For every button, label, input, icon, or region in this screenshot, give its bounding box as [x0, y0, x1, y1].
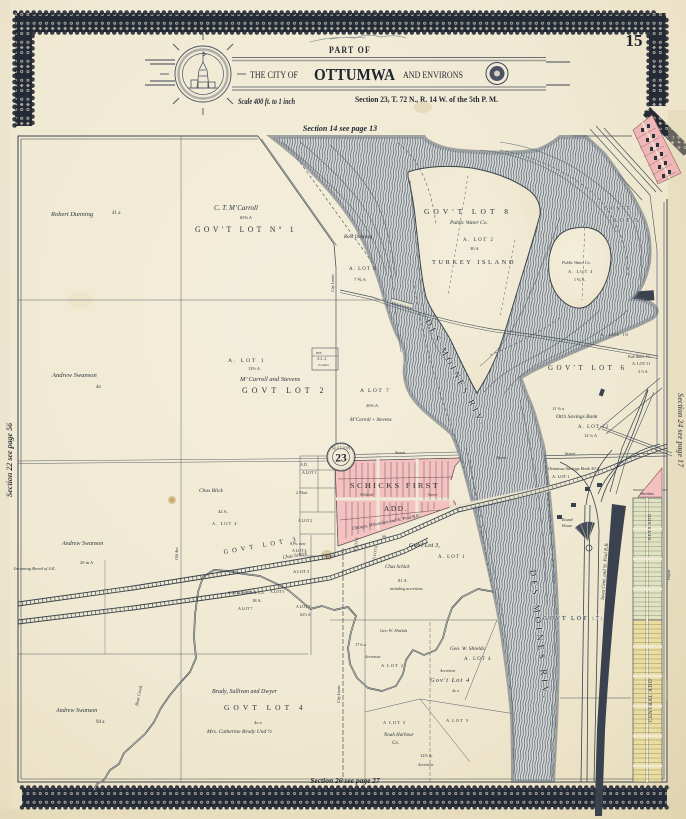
svg-text:Gov't Lot 4: Gov't Lot 4 [430, 677, 470, 684]
svg-text:30 A: 30 A [470, 246, 479, 251]
svg-text:THE CITY OF: THE CITY OF [250, 70, 298, 80]
svg-text:Street: Street [428, 492, 438, 497]
svg-text:18 A.: 18 A. [252, 598, 262, 603]
svg-text:20 in A: 20 in A [80, 560, 94, 565]
svg-text:Accretion: Accretion [364, 654, 380, 659]
svg-text:REF: REF [316, 351, 322, 355]
svg-text:Round: Round [561, 517, 573, 522]
svg-text:A. LOT 12: A. LOT 12 [578, 425, 609, 430]
svg-text:A LOT 3: A LOT 3 [293, 569, 310, 574]
svg-text:Andrew Swanson: Andrew Swanson [55, 708, 97, 714]
svg-text:CENTRAL ADD: CENTRAL ADD [649, 679, 654, 722]
svg-text:13⅔ A: 13⅔ A [248, 366, 261, 371]
svg-text:Hayne: Hayne [666, 569, 671, 581]
svg-text:Brady, Sullivan and Dwyer: Brady, Sullivan and Dwyer [212, 689, 278, 695]
svg-text:KEYS ADD: KEYS ADD [647, 513, 652, 540]
svg-text:A. LOT 11: A. LOT 11 [632, 361, 650, 366]
svg-text:A. LOT 4: A. LOT 4 [212, 521, 238, 526]
svg-text:A LOT 1: A LOT 1 [302, 470, 316, 475]
svg-text:Ott’s Savings Bank: Ott’s Savings Bank [556, 414, 598, 420]
svg-text:A. LOT 1: A. LOT 1 [552, 474, 570, 479]
svg-text:4o a: 4o a [254, 720, 262, 725]
svg-text:81 A.: 81 A. [398, 578, 408, 583]
svg-text:Section 14 see page 13: Section 14 see page 13 [303, 124, 377, 133]
svg-text:1 ⅙ A.: 1 ⅙ A. [574, 277, 586, 282]
svg-text:TURKEY ISLAND: TURKEY ISLAND [432, 259, 516, 266]
svg-text:4o a: 4o a [452, 688, 459, 693]
svg-text:SECTION: SECTION [332, 447, 351, 451]
svg-text:AND ENVIRONS: AND ENVIRONS [403, 70, 463, 80]
svg-text:Accretion: Accretion [417, 762, 433, 767]
svg-text:Accretion: Accretion [439, 668, 455, 673]
svg-text:Incoming Breed of S.E.: Incoming Breed of S.E. [13, 566, 56, 571]
svg-text:Andrew Swanson: Andrew Swanson [51, 372, 97, 379]
svg-text:23: 23 [335, 453, 347, 465]
svg-text:GOV'T: GOV'T [604, 206, 632, 212]
svg-text:GOV'T LOT Nº 1: GOV'T LOT Nº 1 [195, 225, 297, 234]
svg-text:GOV'T LOT 8: GOV'T LOT 8 [424, 207, 512, 216]
svg-text:15: 15 [626, 31, 643, 50]
svg-text:Street: Street [497, 455, 507, 460]
svg-text:City Limits: City Limits [330, 274, 335, 292]
svg-text:A.L. 2: A.L. 2 [317, 357, 326, 361]
svg-text:46.: 46. [381, 533, 387, 539]
svg-text:Public Water Co.: Public Water Co. [449, 220, 488, 226]
svg-text:OTTUMWA: OTTUMWA [314, 65, 395, 84]
svg-text:Section 26 see page 27: Section 26 see page 27 [310, 776, 380, 785]
svg-text:GOVT LOT 4: GOVT LOT 4 [224, 703, 307, 712]
svg-text:62⅓ A: 62⅓ A [300, 612, 311, 617]
svg-text:A. LOT 1: A. LOT 1 [438, 555, 466, 560]
svg-text:House: House [561, 523, 572, 528]
svg-text:Chas Blick: Chas Blick [199, 488, 224, 494]
svg-text:94 a: 94 a [96, 720, 105, 725]
svg-text:A.D.: A.D. [300, 462, 308, 467]
svg-text:Street: Street [395, 450, 406, 455]
svg-text:A LOT 7: A LOT 7 [360, 388, 390, 394]
svg-text:City Limits: City Limits [336, 685, 341, 703]
svg-text:Andrew Swanson: Andrew Swanson [61, 541, 103, 547]
svg-text:20⅛ A.: 20⅛ A. [366, 403, 379, 408]
svg-text:A LOT 2: A LOT 2 [298, 518, 312, 523]
svg-text:17¼ a: 17¼ a [355, 642, 366, 647]
svg-text:7 ⅙ A: 7 ⅙ A [354, 277, 367, 282]
svg-text:Geo. W. Shields: Geo. W. Shields [450, 646, 485, 652]
svg-text:11 ⅛ a.: 11 ⅛ a. [552, 406, 565, 411]
svg-text:Street: Street [565, 451, 576, 456]
svg-text:3 ½ A: 3 ½ A [638, 369, 648, 374]
svg-text:A. LOT 2: A. LOT 2 [463, 238, 495, 243]
svg-text:GOV'T LOT 6: GOV'T LOT 6 [548, 364, 628, 372]
svg-text:12⅓ A.: 12⅓ A. [420, 753, 433, 758]
svg-text:Gov't Lot 3,: Gov't Lot 3, [409, 542, 440, 549]
svg-text:including accretions: including accretions [390, 586, 423, 591]
svg-text:Noah Harbour: Noah Harbour [383, 733, 414, 738]
svg-text:Jno Ross: Jno Ross [318, 363, 330, 367]
svg-text:Wishard: Wishard [360, 492, 374, 497]
svg-text:LOT 5: LOT 5 [614, 218, 640, 224]
svg-text:A LOT 7: A LOT 7 [238, 606, 252, 611]
svg-text:4o: 4o [96, 385, 102, 390]
svg-text:Robt Dunning: Robt Dunning [343, 235, 373, 240]
svg-text:PART OF: PART OF [329, 46, 371, 56]
svg-text:A LOT 5: A LOT 5 [446, 718, 469, 723]
svg-text:Sheridan: Sheridan [640, 492, 654, 496]
svg-text:41 a: 41 a [112, 211, 121, 216]
svg-text:A LOT 5: A LOT 5 [270, 589, 284, 594]
svg-text:GOVT LOT :7:: GOVT LOT :7: [543, 616, 604, 622]
svg-text:Public Water Co.: Public Water Co. [561, 260, 591, 265]
svg-text:GOVT LOT 2: GOVT LOT 2 [242, 386, 327, 395]
svg-text:A LOT 2: A LOT 2 [381, 663, 404, 668]
svg-text:Geo W. Shields: Geo W. Shields [380, 628, 407, 633]
svg-text:SCHICKS FIRST: SCHICKS FIRST [350, 481, 440, 490]
svg-text:A. LOT 4: A. LOT 4 [464, 657, 492, 662]
svg-text:M’ Carroll and Stevens: M’ Carroll and Stevens [239, 376, 301, 383]
svg-text:A LOT 3: A LOT 3 [383, 720, 406, 725]
svg-text:2 Plats: 2 Plats [296, 490, 308, 495]
svg-text:A. LOT 6: A. LOT 6 [349, 267, 377, 272]
svg-text:A. LOT 1: A. LOT 1 [228, 358, 265, 364]
svg-text:A. LOT 10: A. LOT 10 [600, 332, 629, 337]
svg-text:Mrs. Catherine Brady Und ½: Mrs. Catherine Brady Und ½ [206, 728, 272, 735]
svg-text:Robert Dunning: Robert Dunning [50, 211, 94, 218]
svg-text:Ottumwa Savings Bank 50 A.: Ottumwa Savings Bank 50 A. [548, 466, 601, 471]
svg-text:C.M.& St.P.R.R. Co.: C.M.& St.P.R.R. Co. [228, 590, 265, 595]
svg-text:Chas Schick: Chas Schick [385, 565, 410, 570]
svg-text:83⅛ A: 83⅛ A [240, 215, 252, 220]
svg-text:C. T. M’Carroll: C. T. M’Carroll [214, 204, 258, 212]
svg-text:Old Ave: Old Ave [174, 547, 179, 560]
svg-text:Scale 400 ft. to 1 inch: Scale 400 ft. to 1 inch [238, 96, 295, 106]
svg-text:Pub.Water Co.: Pub.Water Co. [627, 354, 652, 359]
svg-text:A. LOT 4: A. LOT 4 [568, 269, 594, 274]
svg-text:A LOT 8: A LOT 8 [296, 604, 310, 609]
svg-text:M’Carroll + Stevens: M’Carroll + Stevens [349, 418, 392, 423]
svg-text:ADD.: ADD. [384, 505, 408, 513]
svg-text:42 A.: 42 A. [218, 509, 228, 514]
svg-text:Co.: Co. [392, 741, 399, 746]
svg-text:12 ¾ A: 12 ¾ A [584, 433, 598, 438]
